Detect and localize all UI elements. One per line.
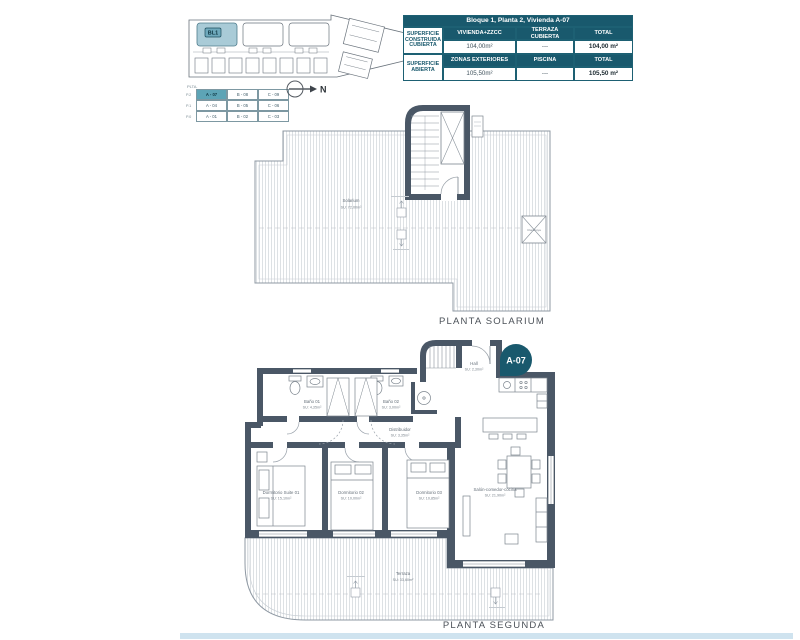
- wardrobes: [327, 378, 377, 416]
- row2-header: PISCINA: [516, 54, 574, 67]
- compass-n-label: N: [320, 85, 327, 95]
- bano1-name: Baño 01: [304, 399, 321, 404]
- surface-summary-table: Bloque 1, Planta 2, Vivienda A-07 SUPERF…: [403, 15, 633, 81]
- bed-suite: [257, 452, 305, 526]
- footer-strip: [180, 633, 793, 639]
- plan-sheet: BL1 PLTA. P.2 A - 07 B - 08 C - 09: [0, 0, 800, 640]
- legend-level: P.2: [186, 89, 196, 100]
- dorm1-name: Dormitorio Suite 01: [263, 490, 300, 495]
- tv-bench: [463, 496, 470, 536]
- bano2-name: Baño 02: [383, 399, 400, 404]
- distribuidor-name: Distribuidor: [389, 427, 411, 432]
- dorm2-name: Dormitorio 02: [338, 490, 364, 495]
- sofa: [505, 498, 547, 544]
- legend-cell: B - 08: [227, 89, 258, 100]
- unit-badge-label: A-07: [506, 356, 526, 366]
- solarium-caption: PLANTA SOLARIUM: [420, 316, 545, 327]
- dorm2-area: SU: 10,00m²: [341, 497, 362, 501]
- bano2-area: SU: 3,00m²: [382, 406, 401, 410]
- legend-level: P.0: [186, 111, 196, 122]
- row2-total: 105,50 m²: [574, 67, 633, 81]
- compass-arrowhead-icon: [310, 86, 317, 93]
- segunda-caption: PLANTA SEGUNDA: [420, 620, 545, 631]
- row1-value: ---: [516, 40, 574, 54]
- salon-name: Salón-comedor-cocina: [474, 487, 518, 492]
- segunda-floor-plan: Terraza SU: 33,60m²: [243, 338, 573, 630]
- kitchen-island: [483, 418, 537, 439]
- distribuidor-area: SU: 3,35m²: [391, 434, 410, 438]
- solarium-room-name: Solarium: [343, 198, 360, 203]
- bl1-label: BL1: [208, 31, 218, 37]
- legend-cell-a07: A - 07: [196, 89, 227, 100]
- legend-level: P.1: [186, 100, 196, 111]
- hall-name: Hall: [470, 361, 477, 366]
- salon-area: SU: 21,90m²: [485, 494, 506, 498]
- row2-value: 105,50m²: [443, 67, 516, 81]
- terraza-area: SU: 33,60m²: [393, 578, 414, 582]
- legend-cell: A - 01: [196, 111, 227, 122]
- solarium-floor-plan: Claraboya Solarium SU: 72,00m²: [243, 100, 558, 330]
- row2-value: ---: [516, 67, 574, 81]
- dorm1-area: SU: 15,10m²: [271, 497, 292, 501]
- block-2: [243, 23, 283, 46]
- row1-label: SUPERFICIE CONSTRUIDA CUBIERTA: [403, 27, 443, 54]
- legend-cell: A - 04: [196, 100, 227, 111]
- solarium-room-area: SU: 72,00m²: [341, 206, 362, 210]
- stair-door-opening: [441, 193, 457, 201]
- service-box: [472, 116, 483, 137]
- hall-area: SU: 2,30m²: [465, 368, 484, 372]
- solarium-terrace-outline: [255, 131, 550, 311]
- row1-header: VIVIENDA+ZZCC: [443, 27, 516, 40]
- row2-header: ZONAS EXTERIORES: [443, 54, 516, 67]
- segunda-stair-treads: [426, 346, 456, 368]
- kitchen-counter: [499, 378, 547, 408]
- block-3: [289, 23, 329, 46]
- row1-header: TOTAL: [574, 27, 633, 40]
- skylight-label: Claraboya: [527, 228, 541, 232]
- row2-label: SUPERFICIE ABIERTA: [403, 54, 443, 81]
- row1-header: TERRAZA CUBIERTA: [516, 27, 574, 40]
- row2-header: TOTAL: [574, 54, 633, 67]
- row1-total: 104,00 m²: [574, 40, 633, 54]
- north-compass: N: [284, 76, 330, 102]
- dorm3-name: Dormitorio 03: [416, 490, 442, 495]
- terraza-name: Terraza: [396, 571, 411, 576]
- dorm3-area: SU: 10,85m²: [419, 497, 440, 501]
- bano1-area: SU: 4,35m²: [303, 406, 322, 410]
- site-plan: BL1: [183, 6, 423, 86]
- table-title: Bloque 1, Planta 2, Vivienda A-07: [403, 15, 633, 27]
- row1-value: 104,00m²: [443, 40, 516, 54]
